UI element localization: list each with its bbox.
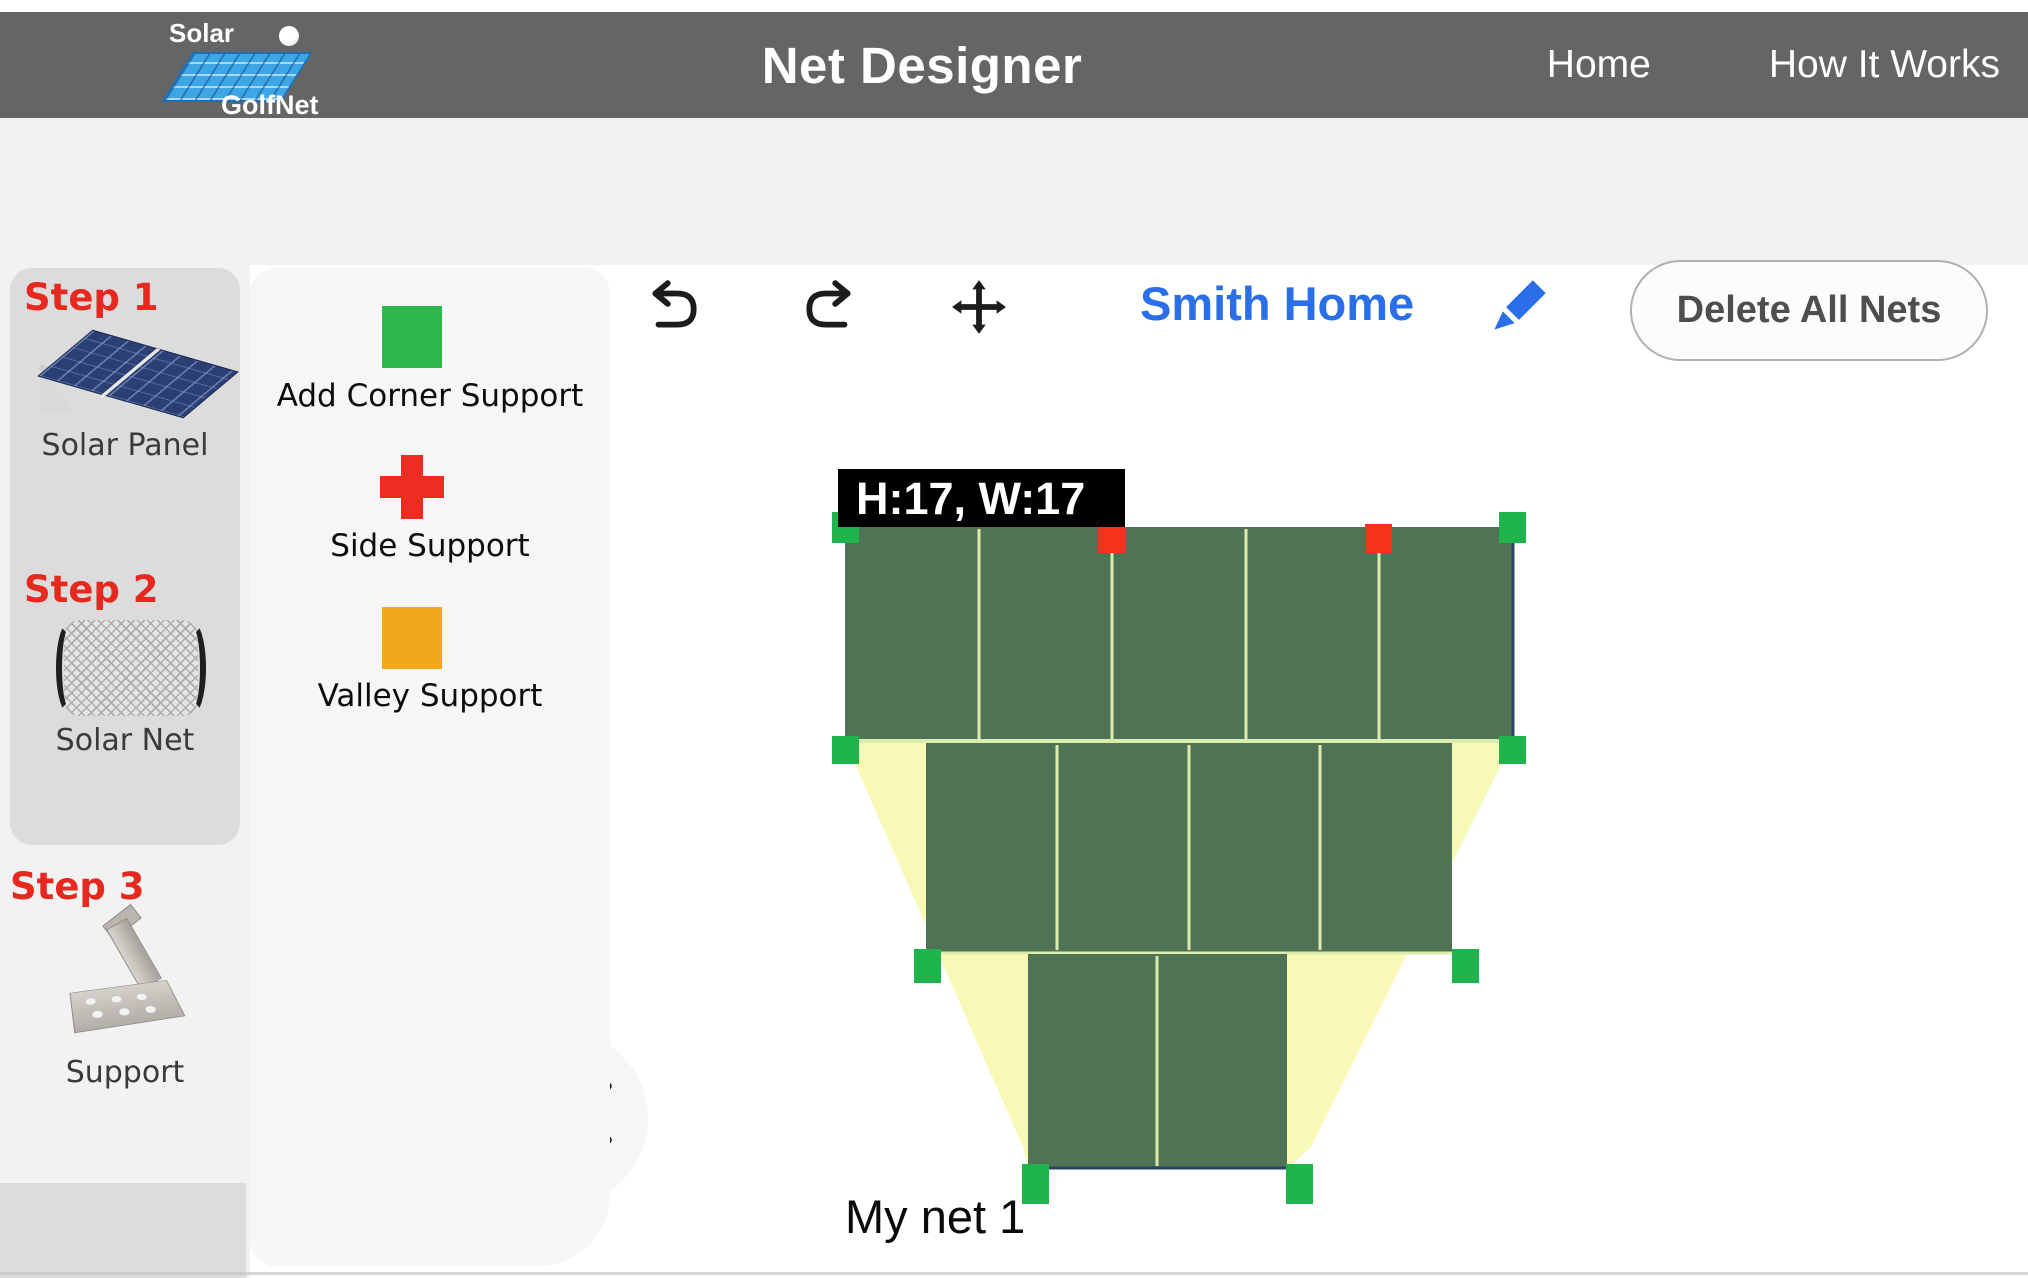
handle-top-right[interactable]: [1499, 512, 1526, 543]
net-size-label: H:17, W:17: [856, 473, 1085, 524]
handle-row3-right[interactable]: [1452, 949, 1479, 983]
handle-bottom-right[interactable]: [1286, 1164, 1313, 1204]
handle-side-2[interactable]: [1365, 524, 1392, 553]
handle-side-1[interactable]: [1098, 524, 1125, 553]
canvas-bottom-border: [0, 1272, 2028, 1275]
handle-row2-left[interactable]: [832, 736, 859, 764]
handle-row2-right[interactable]: [1499, 736, 1526, 764]
net-row1[interactable]: [845, 527, 1513, 741]
net-name-label: My net 1: [845, 1190, 1025, 1243]
handle-row3-left[interactable]: [914, 949, 941, 983]
handle-bottom-left[interactable]: [1022, 1164, 1049, 1204]
design-canvas[interactable]: H:17, W:17 My net 1: [0, 0, 2028, 1278]
